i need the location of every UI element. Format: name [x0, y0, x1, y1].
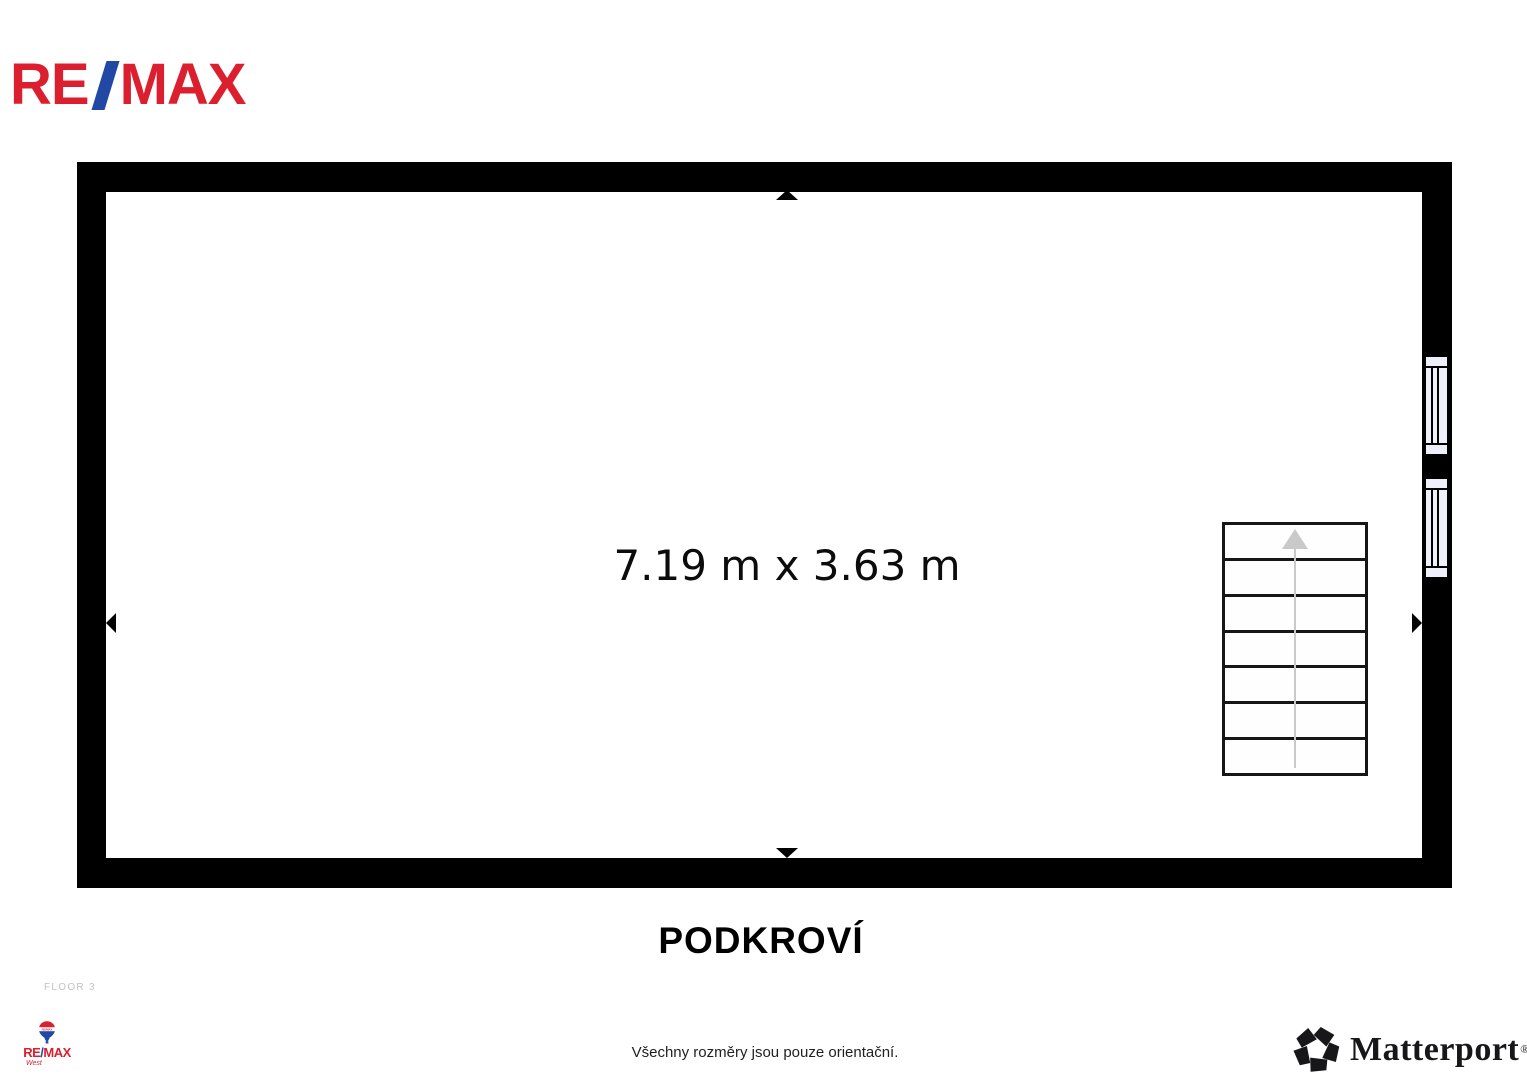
window-sill-line: [1426, 443, 1447, 445]
stairs-up-arrow-icon: [1282, 529, 1308, 549]
room-dimension-label: 7.19 m x 3.63 m: [577, 541, 997, 590]
remax-logo-max: MAX: [120, 60, 246, 110]
floor-indicator: FLOOR 3: [44, 982, 96, 993]
window-symbol-lower: [1424, 477, 1449, 579]
remax-balloon-icon: RE/MAX: [36, 1021, 58, 1045]
dimension-arrow-right-icon: [1412, 613, 1422, 633]
matterport-wordmark: Matterport: [1350, 1031, 1519, 1069]
matterport-logo: Matterport®: [1292, 1026, 1527, 1073]
remax-logo-slash-icon: [91, 61, 119, 110]
dimension-arrow-left-icon: [106, 613, 116, 633]
agency-name-re: RE: [23, 1045, 40, 1060]
agency-logo: RE/MAX RE/MAX West: [20, 1021, 74, 1067]
window-mullion-line: [1437, 490, 1439, 566]
balloon-label: RE/MAX: [42, 1027, 53, 1031]
window-symbol-upper: [1424, 355, 1449, 456]
agency-name-max: MAX: [43, 1045, 70, 1060]
agency-name: RE/MAX: [20, 1046, 74, 1059]
floorplan-page: RE MAX 7.19 m x 3.63 m PODKROVÍ FLOOR 3: [0, 0, 1527, 1080]
dimension-arrow-bottom-icon: [776, 848, 798, 858]
agency-subtitle: West: [20, 1060, 74, 1067]
window-sill-line: [1426, 566, 1447, 568]
staircase-symbol: [1222, 522, 1368, 776]
window-mullion-line: [1431, 368, 1433, 443]
window-mullion-line: [1431, 490, 1433, 566]
registered-mark: ®: [1520, 1042, 1527, 1057]
matterport-icon: [1292, 1026, 1341, 1073]
disclaimer-text: Všechny rozměry jsou pouze orientační.: [465, 1044, 1065, 1061]
dimension-arrow-top-icon: [776, 190, 798, 200]
remax-logo-re: RE: [10, 60, 89, 110]
stairs-direction-line: [1294, 549, 1296, 768]
window-mullion-line: [1437, 368, 1439, 443]
remax-logo: RE MAX: [10, 60, 245, 110]
floor-title: PODKROVÍ: [561, 920, 961, 962]
